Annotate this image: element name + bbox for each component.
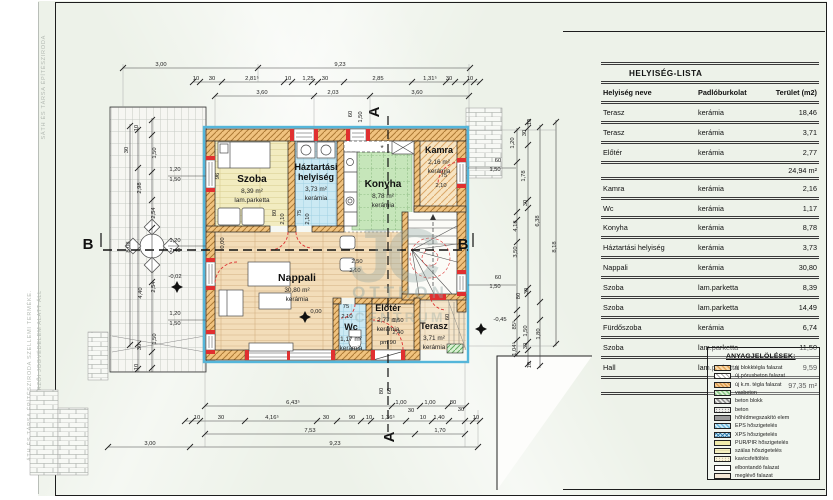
cell-room-name: Terasz: [601, 108, 698, 117]
dimension-label: 30: [408, 408, 414, 414]
dimension-label: 1,31⁵: [423, 75, 437, 82]
dimension-label: 30: [218, 415, 224, 421]
legend-item: beton: [714, 405, 817, 413]
dimension-label: 30: [524, 288, 530, 294]
dimension-label: 80: [379, 388, 385, 394]
cell-room-name: Fürdőszoba: [601, 323, 698, 332]
dimension-label: 90: [349, 415, 355, 421]
site-outline: [497, 356, 592, 490]
dimension-label: 1,50: [358, 111, 364, 122]
section-marker-a-bottom: A: [381, 431, 398, 442]
legend-item: elbontandó falazat: [714, 464, 817, 472]
dimension-label: 1,20: [510, 137, 516, 148]
cell-room-name: Terasz: [601, 128, 698, 137]
terrace-large: [110, 107, 206, 372]
table-row: Előtérkerámia2,77: [601, 144, 819, 164]
cell-area: 30,80: [766, 263, 819, 272]
legend-swatch-demolish: [714, 465, 731, 471]
cell-floor-finish: kerámia: [698, 148, 766, 157]
legend-item-label: szálas hőszigetelés: [735, 448, 782, 454]
legend-items: új blokktégla falazatúj pórusbeton falaz…: [714, 364, 817, 480]
dimension-label: 30: [322, 76, 328, 82]
cell-floor-finish: kerámia: [698, 184, 766, 193]
room-floor-finish: kerámia: [423, 344, 446, 351]
dimension-label: 8,18: [552, 241, 558, 252]
legend-item-label: vasbeton: [735, 390, 757, 396]
dimension-label: 30: [523, 343, 529, 349]
dimension-label: 60: [445, 314, 451, 320]
table-row: Háztartási helyiségkerámia3,73: [601, 239, 819, 259]
legend-swatch-brick-new: [714, 365, 731, 371]
dimension-label: 1,00: [395, 400, 406, 406]
legend-item-label: beton blokk: [735, 398, 763, 404]
cell-area: 14,49: [766, 303, 819, 312]
cell-area: 8,78: [766, 223, 819, 232]
material-legend: ANYAGJELÖLÉSEK: új blokktégla falazatúj …: [707, 347, 820, 480]
legend-swatch-gravel: [714, 456, 731, 462]
legend-item-label: EPS hőszigetelés: [735, 423, 777, 429]
cell-area: 8,39: [766, 283, 819, 292]
dimension-label: 80: [516, 293, 522, 299]
dimension-label: 80: [272, 210, 278, 216]
dimension-label: 3,60: [256, 90, 267, 96]
legend-item: PUR/PIR hőszigetelés: [714, 439, 817, 447]
dimension-label: 2,54: [151, 281, 157, 293]
legend-swatch-small-brick: [714, 382, 731, 388]
room-floor-finish: kerámia: [428, 168, 451, 175]
room-area: 2,16 m²: [428, 159, 450, 166]
dimension-label: 60: [387, 388, 393, 394]
cell-room-name: Szoba: [601, 283, 698, 292]
room-area: 1,17 m²: [340, 336, 362, 343]
watermark-line1: OTTHON: [352, 283, 448, 302]
room-area: 8,78 m²: [372, 193, 394, 200]
dimension-label: 80: [450, 400, 456, 406]
dimension-label: 30: [137, 344, 143, 350]
cell-floor-finish: kerámia: [698, 243, 766, 252]
dimension-label: 10: [134, 125, 140, 131]
dimension-label: 1,36⁵: [381, 414, 395, 421]
legend-swatch-concrete-block: [714, 398, 731, 404]
dimension-label: 2,40: [169, 248, 180, 254]
dimension-label: 1,25: [302, 76, 313, 82]
dimension-label: 1,50: [169, 321, 180, 327]
dimension-label: 96: [215, 173, 221, 179]
dimension-label: 1,20: [169, 238, 180, 244]
legend-item-label: új blokktégla falazat: [735, 365, 782, 371]
room-area: 30,80 m²: [284, 287, 309, 294]
cell-room-name: Konyha: [601, 223, 698, 232]
room-area: 3,71 m²: [423, 335, 445, 342]
cell-area: 2,16: [766, 184, 819, 193]
table-row: Kamrakerámia2,16: [601, 180, 819, 200]
dimension-label: 10: [527, 362, 533, 368]
legend-item: új pórusbeton falazat: [714, 372, 817, 380]
dimension-label: 2,98: [137, 182, 143, 193]
legend-swatch-purpir: [714, 440, 731, 446]
table-row: Teraszkerámia3,71: [601, 124, 819, 144]
dimension-label: 3,60: [411, 90, 422, 96]
dimension-label: 8,08: [126, 241, 132, 252]
cell-area: 18,46: [766, 108, 819, 117]
dimension-label: 1,20: [169, 167, 180, 173]
dimension-label: 1,50: [152, 333, 158, 344]
dimension-label: 2,10: [435, 183, 446, 189]
legend-item-label: hőhídmegszakító elem: [735, 415, 789, 421]
dimension-label: 1,00: [424, 400, 435, 406]
table-row: Teraszkerámia18,46: [601, 104, 819, 124]
legend-item-label: új pórusbeton falazat: [735, 373, 785, 379]
dimension-label: 0,00: [220, 237, 226, 248]
dimension-label: 75: [343, 304, 349, 310]
cell-room-name: Wc: [601, 204, 698, 213]
dimension-label: -0,45: [493, 317, 506, 323]
cell-area: 3,71: [766, 128, 819, 137]
legend-item-label: XPS hőszigetelés: [735, 432, 777, 438]
dimension-label: 10: [420, 415, 426, 421]
cell-floor-finish: kerámia: [698, 204, 766, 213]
hob-symbol: *: [380, 144, 383, 153]
dimension-label: 2,54: [151, 207, 157, 219]
cell-area: 6,74: [766, 323, 819, 332]
dimension-label: 1,50: [152, 147, 158, 158]
legend-item-label: PUR/PIR hőszigetelés: [735, 440, 788, 446]
rc-pad: [447, 344, 463, 353]
room-floor-finish: kerámia: [286, 296, 309, 303]
cell-area: 1,17: [766, 204, 819, 213]
dimension-label: 3,00: [144, 441, 155, 447]
room-floor-finish: kerámia: [377, 326, 400, 333]
cell-area: 3,73: [766, 243, 819, 252]
dimension-label: 10: [467, 76, 473, 82]
dimension-label: 6,38: [535, 215, 541, 226]
legend-swatch-existing: [714, 473, 731, 479]
table-row: Konyhakerámia8,78: [601, 219, 819, 239]
cell-floor-finish: lam.parketta: [698, 303, 766, 312]
dimension-label: 9,23: [334, 62, 345, 68]
legend-swatch-xps: [714, 432, 731, 438]
cell-floor-finish: lam.parketta: [698, 283, 766, 292]
room-area: 3,73 m²: [305, 186, 327, 193]
room-name: Konyha: [365, 179, 402, 190]
dimension-label: 1,40: [433, 415, 444, 421]
room-floor-finish: kerámia: [340, 345, 363, 352]
column-header-floor: Padlóburkolat: [698, 88, 766, 97]
room-name: Nappali: [278, 272, 316, 284]
legend-item: kavicsfeltöltés: [714, 455, 817, 463]
legend-swatch-eps: [714, 423, 731, 429]
room-name: Háztartási: [294, 162, 337, 172]
legend-item: hőhídmegszakító elem: [714, 414, 817, 422]
dimension-label: 30: [209, 76, 215, 82]
dimension-label: 2,10: [305, 213, 311, 224]
legend-item-label: kavicsfeltöltés: [735, 456, 769, 462]
dimension-label: 1,80: [536, 328, 542, 339]
legend-item-label: beton: [735, 407, 749, 413]
cell-floor-finish: kerámia: [698, 223, 766, 232]
dimension-label: 10: [134, 364, 140, 370]
dimension-label: pm 90: [380, 340, 396, 346]
legend-title: ANYAGJELÖLÉSEK:: [726, 353, 817, 360]
section-marker-a-top: A: [366, 106, 383, 117]
section-marker-b-left: B: [83, 236, 94, 253]
dimension-label: 4,18: [513, 220, 519, 231]
table-subtotal-row: 24,94 m²: [601, 164, 819, 180]
dimension-label: 10: [194, 415, 200, 421]
dimension-label: 3,50: [513, 246, 519, 257]
room-name: helyiség: [298, 172, 334, 182]
column-header-area: Terület (m2): [766, 88, 819, 97]
cell-floor-finish: kerámia: [698, 323, 766, 332]
dimension-label: 30: [124, 147, 130, 153]
cell-room-name: Kamra: [601, 184, 698, 193]
dimension-label: 1,04⁵: [511, 342, 518, 356]
dimension-label: 1,50: [489, 284, 500, 290]
dimension-label: 60: [348, 111, 354, 117]
room-floor-finish: kerámia: [372, 202, 395, 209]
dimension-label: 2,10: [341, 314, 352, 320]
watermark-line2: CENTRUM: [355, 309, 446, 325]
room-name: Kamra: [425, 145, 454, 155]
legend-item: meglévő falazat: [714, 472, 817, 480]
legend-item-label: meglévő falazat: [735, 473, 773, 479]
room-floor-finish: lam.parketta: [234, 197, 270, 204]
cell-room-name: Szoba: [601, 303, 698, 312]
legend-item: szálas hőszigetelés: [714, 447, 817, 455]
dimension-label: 7,53: [304, 428, 315, 434]
legend-swatch-concrete: [714, 407, 731, 413]
dimension-label: 1,50: [489, 167, 500, 173]
cell-area: 2,77: [766, 148, 819, 157]
section-marker-b-right: B: [458, 236, 469, 253]
dimension-label: 30: [458, 407, 464, 413]
table-title: HELYISÉG-LISTA: [601, 65, 819, 81]
table-row: Szobalam.parketta8,39: [601, 279, 819, 299]
dimension-label: 4,16⁵: [265, 414, 279, 421]
dimension-label: 2,10: [280, 213, 286, 224]
dimension-label: 6,43⁵: [286, 399, 300, 406]
dimension-label: 30: [522, 130, 528, 136]
dimension-label: 60: [495, 275, 501, 281]
legend-swatch-porous: [714, 373, 731, 379]
dimension-label: 75: [297, 210, 303, 216]
legend-item-label: elbontandó falazat: [735, 465, 779, 471]
dimension-label: 85⁵: [511, 320, 518, 329]
dimension-label: 1,20: [169, 311, 180, 317]
legend-swatch-rc: [714, 390, 731, 396]
cell-floor-finish: kerámia: [698, 108, 766, 117]
dimension-label: 10: [285, 76, 291, 82]
dimension-label: 60: [495, 158, 501, 164]
legend-item: beton blokk: [714, 397, 817, 405]
room-area: 8,39 m²: [241, 188, 263, 195]
dimension-label: 30: [446, 76, 452, 82]
legend-item: új blokktégla falazat: [714, 364, 817, 372]
dimension-label: 1,78: [521, 170, 527, 181]
column-header-name: Helyiség neve: [601, 88, 698, 97]
dimension-label: 10: [527, 119, 533, 125]
dimension-label: 10: [193, 76, 199, 82]
table-row: Fürdőszobakerámia6,74: [601, 319, 819, 339]
dimension-label: 2,03: [327, 90, 338, 96]
cell-room-name: Előtér: [601, 148, 698, 157]
legend-item: EPS hőszigetelés: [714, 422, 817, 430]
dimension-label: 1,50: [523, 325, 529, 336]
cell-floor-finish: kerámia: [698, 128, 766, 137]
room-list-table: HELYISÉG-LISTA Helyiség neve Padlóburkol…: [601, 62, 819, 395]
room-floor-finish: kerámia: [305, 195, 328, 202]
room-name: Szoba: [237, 174, 267, 185]
dimension-label: 4,40: [138, 287, 144, 298]
legend-item: új k.m. tégla falazat: [714, 381, 817, 389]
legend-item: vasbeton: [714, 389, 817, 397]
legend-swatch-thermal-break: [714, 415, 731, 421]
dimension-label: 1,50: [169, 177, 180, 183]
dimension-label: 30: [523, 200, 529, 206]
dimension-label: -0,02: [168, 274, 181, 280]
table-row: Szobalam.parketta14,49: [601, 299, 819, 319]
cell-room-name: Háztartási helyiség: [601, 243, 698, 252]
cell-floor-finish: kerámia: [698, 263, 766, 272]
dimension-label: 10: [473, 415, 479, 421]
dimension-label: 9,23: [329, 441, 340, 447]
legend-item-label: új k.m. tégla falazat: [735, 382, 781, 388]
table-row: Wckerámia1,17: [601, 200, 819, 220]
dimension-label: 2,81⁵: [245, 75, 259, 82]
table-header: Helyiség neve Padlóburkolat Terület (m2): [601, 84, 819, 101]
dimension-label: 3,00: [155, 62, 166, 68]
legend-swatch-fiber: [714, 448, 731, 454]
dimension-label: 10: [366, 415, 372, 421]
cell-room-name: Nappali: [601, 263, 698, 272]
cell-room-name: Hall: [601, 363, 698, 372]
table-row: Nappalikerámia30,80: [601, 259, 819, 279]
subtotal-area: 24,94 m²: [601, 166, 819, 175]
watermark: JC OTTHON CENTRUM: [349, 214, 447, 325]
cell-room-name: Szoba: [601, 343, 698, 352]
dimension-label: 30: [323, 415, 329, 421]
legend-item: XPS hőszigetelés: [714, 430, 817, 438]
dimension-label: 1,70: [434, 428, 445, 434]
dimension-label: 2,85: [372, 76, 383, 82]
dimension-label: 0,00: [310, 309, 321, 315]
